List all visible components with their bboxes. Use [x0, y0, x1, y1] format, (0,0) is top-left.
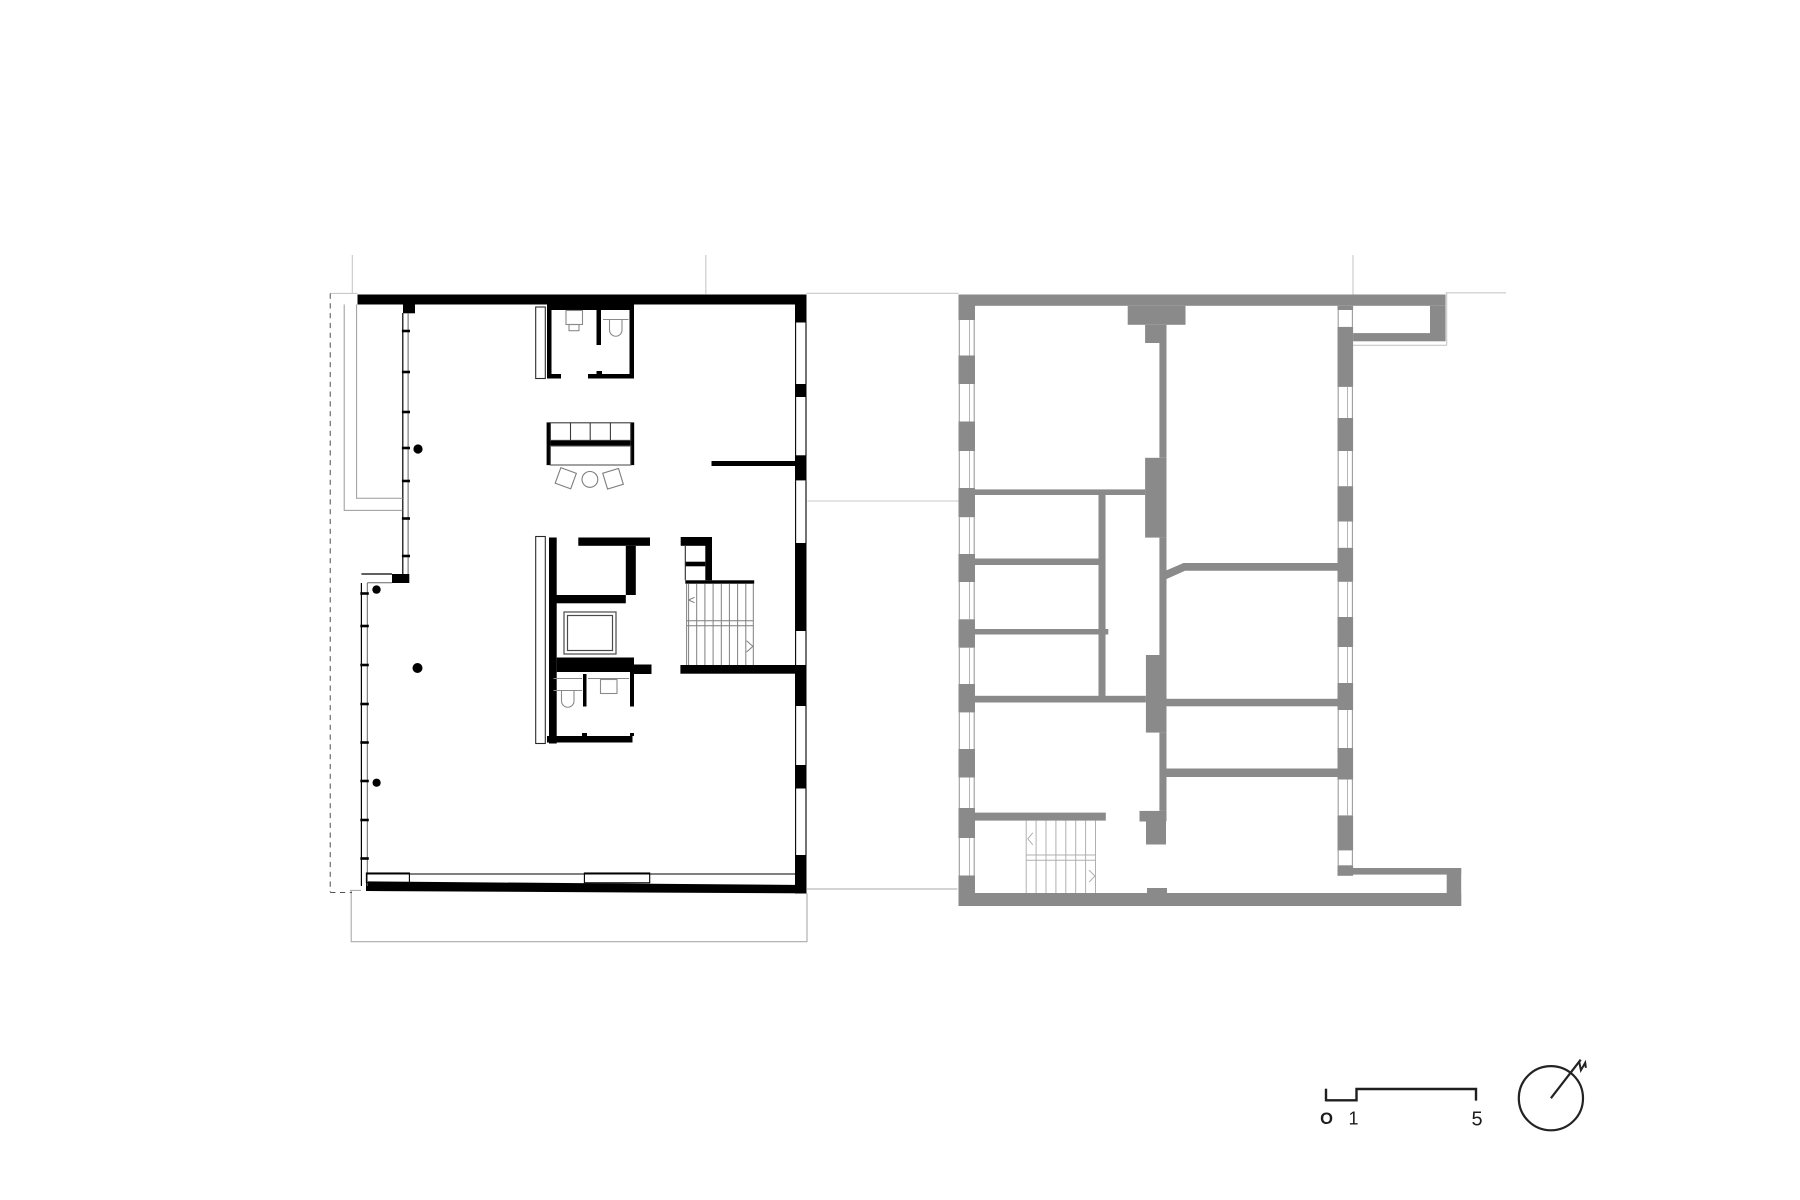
svg-text:1: 1: [1348, 1109, 1358, 1129]
svg-text:5: 5: [1471, 1109, 1482, 1131]
svg-text:O: O: [1320, 1110, 1333, 1128]
